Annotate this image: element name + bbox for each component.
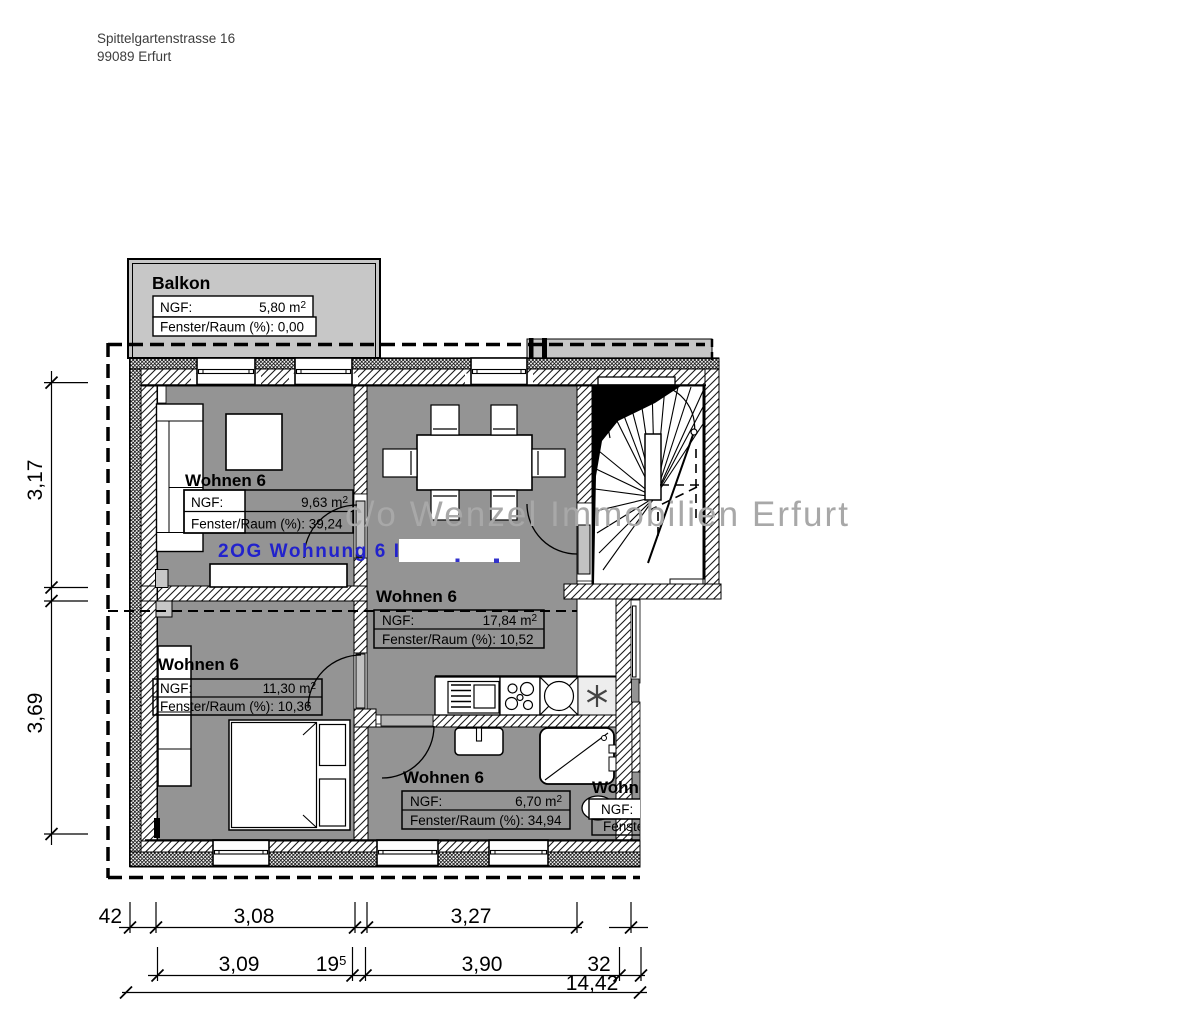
- svg-text:Wohnen 6: Wohnen 6: [376, 587, 457, 606]
- svg-text:Wohnen 6: Wohnen 6: [185, 471, 266, 490]
- svg-text:c/o Wenzel Immobilien Erfurt: c/o Wenzel Immobilien Erfurt: [345, 495, 848, 534]
- svg-text:99089 Erfurt: 99089 Erfurt: [97, 49, 172, 64]
- svg-text:5,80 m2: 5,80 m2: [259, 300, 306, 315]
- svg-text:3,09: 3,09: [219, 953, 260, 976]
- svg-text:NGF:: NGF:: [160, 681, 192, 696]
- svg-text:NGF:: NGF:: [382, 613, 414, 628]
- svg-text:42: 42: [99, 905, 122, 928]
- svg-text:3,08: 3,08: [234, 905, 275, 928]
- svg-text:3,90: 3,90: [462, 953, 503, 976]
- svg-text:11,30 m2: 11,30 m2: [263, 681, 317, 696]
- svg-text:Spittelgartenstrasse 16: Spittelgartenstrasse 16: [97, 31, 235, 46]
- svg-text:Fenster/Raum (%): 34,94: Fenster/Raum (%): 34,94: [410, 813, 562, 828]
- svg-text:9,63 m2: 9,63 m2: [301, 495, 348, 510]
- svg-text:3,69: 3,69: [24, 693, 47, 734]
- svg-text:Wohnen 6: Wohnen 6: [158, 655, 239, 674]
- svg-text:3,27: 3,27: [451, 905, 492, 928]
- svg-text:Wohnen 6: Wohnen 6: [403, 768, 484, 787]
- svg-text:Fenster/Raum (%): 0,00: Fenster/Raum (%): 0,00: [160, 320, 304, 335]
- svg-text:NGF:: NGF:: [191, 495, 223, 510]
- svg-text:NGF:: NGF:: [160, 300, 192, 315]
- svg-text:Fenster/Raum (%): 39,24: Fenster/Raum (%): 39,24: [191, 517, 343, 532]
- svg-text:Fenster/Raum (%): 10,36: Fenster/Raum (%): 10,36: [160, 699, 312, 714]
- svg-text:17,84 m2: 17,84 m2: [483, 613, 538, 628]
- svg-text:14,42: 14,42: [566, 972, 619, 995]
- svg-text:6,70 m2: 6,70 m2: [515, 794, 562, 809]
- svg-text:NGF:: NGF:: [601, 802, 633, 817]
- svg-text:3,17: 3,17: [24, 460, 47, 501]
- svg-text:Fenster/Raum (%): 10,52: Fenster/Raum (%): 10,52: [382, 632, 534, 647]
- svg-text:Balkon: Balkon: [152, 273, 210, 293]
- svg-text:NGF:: NGF:: [410, 794, 442, 809]
